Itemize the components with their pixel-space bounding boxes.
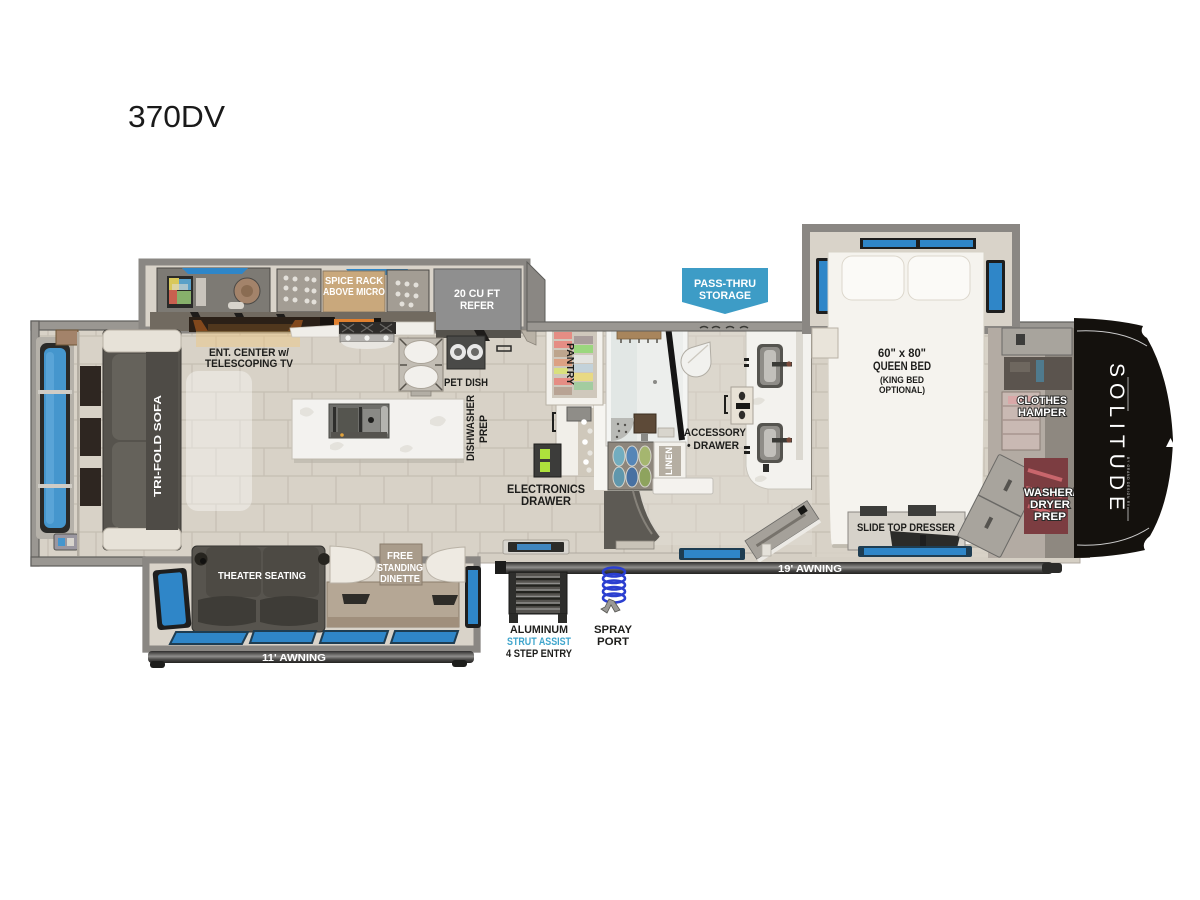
svg-text:STORAGE: STORAGE xyxy=(699,290,751,302)
svg-text:ABOVE MICRO: ABOVE MICRO xyxy=(323,287,385,298)
svg-text:DISHWASHER: DISHWASHER xyxy=(465,395,477,461)
svg-text:WASHER/: WASHER/ xyxy=(1024,487,1076,499)
svg-text:DRAWER: DRAWER xyxy=(521,496,572,508)
svg-text:CLOTHES: CLOTHES xyxy=(1017,395,1067,407)
svg-text:19' AWNING: 19' AWNING xyxy=(778,563,842,575)
svg-text:PORT: PORT xyxy=(597,636,629,648)
svg-text:QUEEN BED: QUEEN BED xyxy=(873,361,931,373)
svg-text:SPRAY: SPRAY xyxy=(594,624,633,636)
svg-text:SPICE RACK: SPICE RACK xyxy=(325,276,384,287)
svg-text:PET DISH: PET DISH xyxy=(444,377,488,389)
svg-text:ALUMINUM: ALUMINUM xyxy=(510,624,568,636)
svg-text:370DV: 370DV xyxy=(128,99,225,134)
svg-text:ELECTRONICS: ELECTRONICS xyxy=(507,484,585,496)
svg-text:BY GRAND DESIGN RV: BY GRAND DESIGN RV xyxy=(1126,457,1130,507)
svg-text:• DRAWER: • DRAWER xyxy=(687,440,739,452)
svg-text:TELESCOPING TV: TELESCOPING TV xyxy=(205,358,294,370)
svg-text:PANTRY: PANTRY xyxy=(564,343,576,385)
svg-text:HAMPER: HAMPER xyxy=(1018,407,1066,419)
svg-text:20 CU FT: 20 CU FT xyxy=(454,288,500,300)
svg-text:4 STEP ENTRY: 4 STEP ENTRY xyxy=(506,648,573,660)
svg-text:LINEN: LINEN xyxy=(664,447,674,475)
svg-text:60" x 80": 60" x 80" xyxy=(878,348,926,360)
svg-text:PASS-THRU: PASS-THRU xyxy=(694,278,756,290)
svg-text:SLIDE TOP DRESSER: SLIDE TOP DRESSER xyxy=(857,522,955,534)
svg-text:DRYER: DRYER xyxy=(1030,499,1070,511)
svg-text:TRI-FOLD SOFA: TRI-FOLD SOFA xyxy=(152,394,164,497)
svg-text:ACCESSORY: ACCESSORY xyxy=(684,427,747,439)
svg-text:THEATER SEATING: THEATER SEATING xyxy=(218,570,306,582)
svg-text:11' AWNING: 11' AWNING xyxy=(262,652,326,664)
svg-text:OPTIONAL): OPTIONAL) xyxy=(879,385,925,396)
svg-text:FREE: FREE xyxy=(387,550,413,562)
svg-text:STRUT ASSIST: STRUT ASSIST xyxy=(507,636,571,648)
svg-text:PREP: PREP xyxy=(478,415,490,443)
svg-text:REFER: REFER xyxy=(460,300,494,312)
svg-text:SOLITUDE: SOLITUDE xyxy=(1105,363,1128,515)
svg-text:DINETTE: DINETTE xyxy=(380,573,420,585)
svg-text:PREP: PREP xyxy=(1034,511,1066,523)
